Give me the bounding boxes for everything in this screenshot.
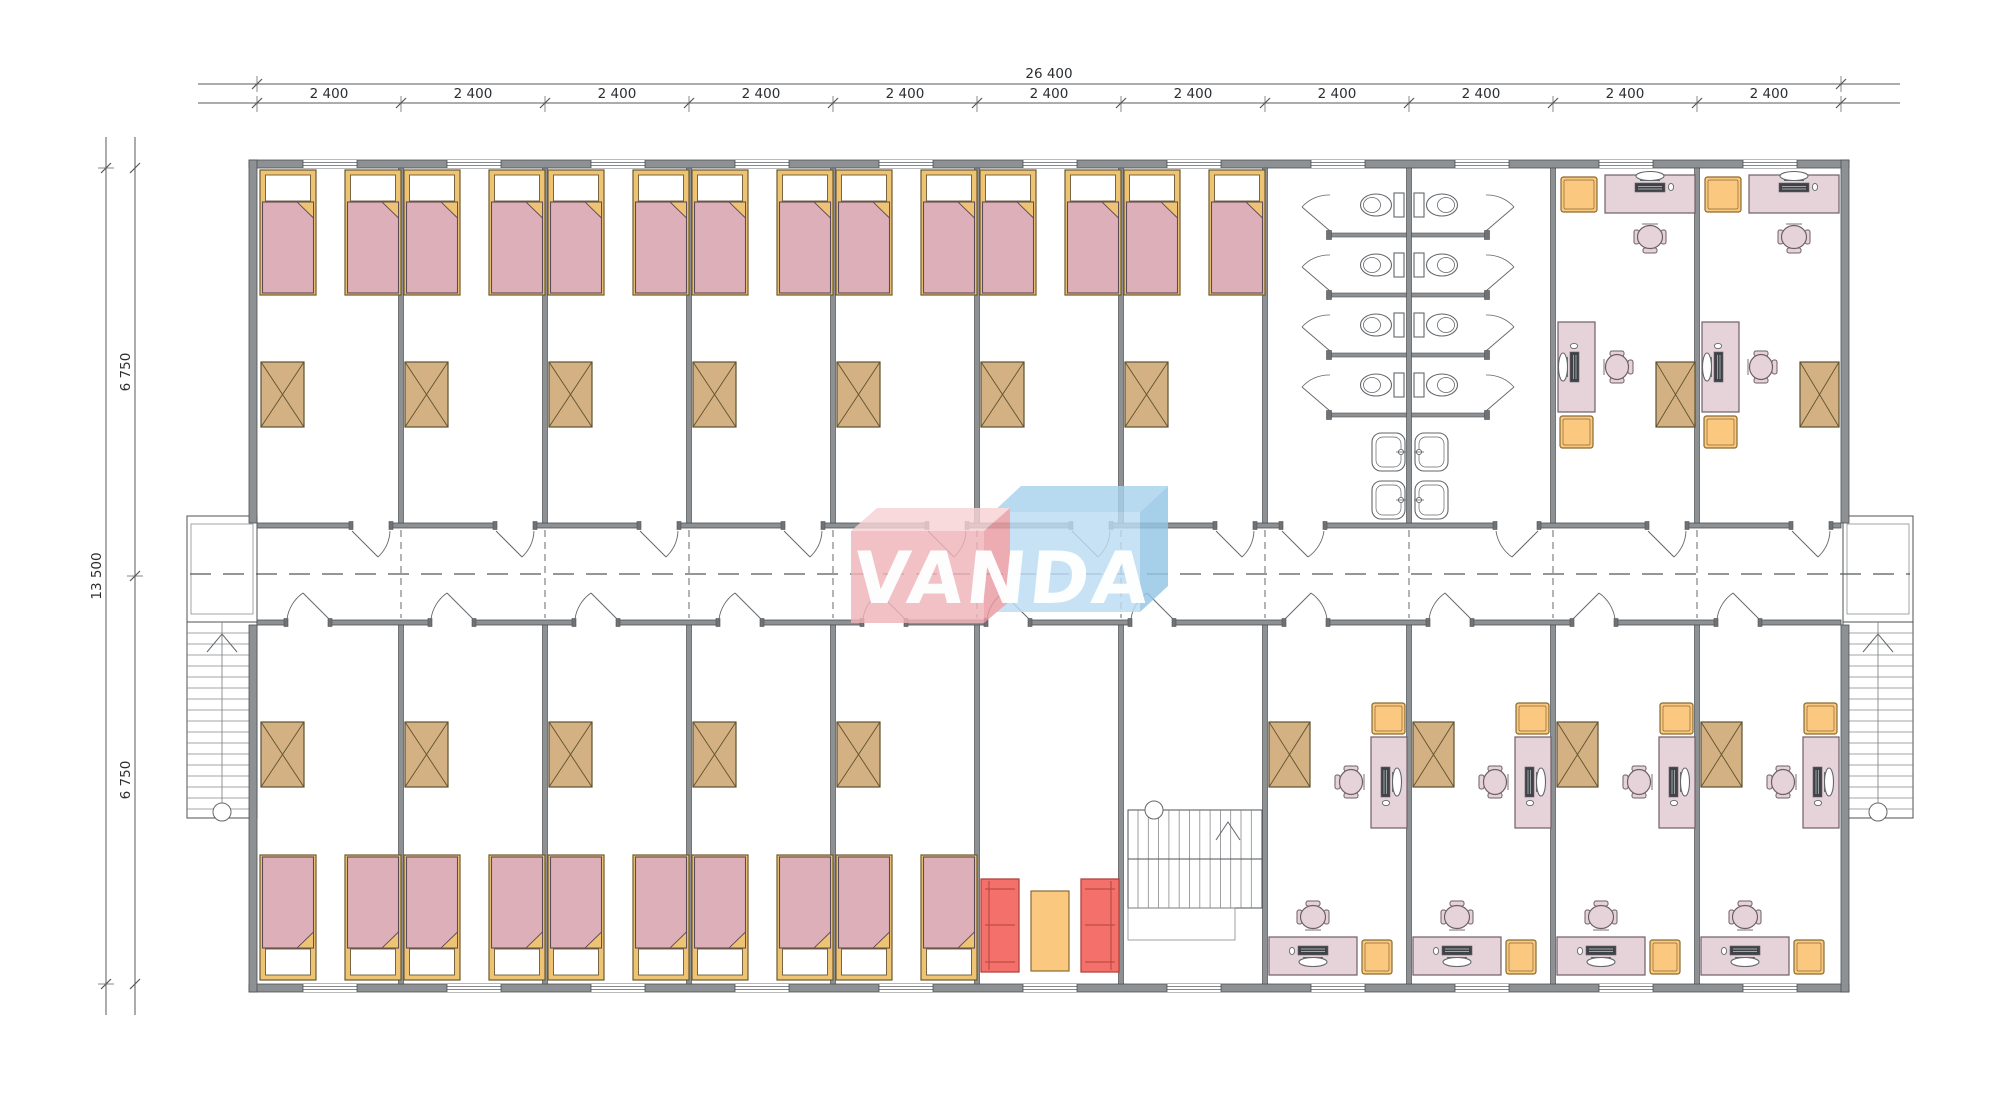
bed-icon [692, 170, 748, 295]
stall-door-icon [1486, 375, 1514, 411]
window-icon [591, 984, 645, 992]
room-bedroom-bottom-2 [404, 722, 545, 980]
desk-icon [1701, 937, 1789, 975]
wardrobe-icon [837, 362, 880, 427]
room-bedroom-top-2 [404, 170, 545, 427]
cabinet-icon [1660, 703, 1693, 734]
bed-icon [692, 855, 748, 980]
dimension-label: 13 500 [89, 552, 105, 599]
desk-icon [1269, 937, 1357, 975]
wardrobe-icon [405, 362, 448, 427]
desk-icon [1413, 937, 1501, 975]
dimension-label: 6 750 [118, 353, 134, 392]
window-icon [1023, 984, 1077, 992]
door-icon [1717, 593, 1759, 619]
bed-icon [921, 855, 977, 980]
dimension-label: 2 400 [1318, 86, 1357, 102]
sofa-icon [1081, 879, 1119, 972]
office-chair-icon [1297, 901, 1329, 930]
window-icon [1311, 984, 1365, 992]
window-icon [1743, 984, 1797, 992]
dimension-label: 2 400 [598, 86, 637, 102]
room-bedroom-bottom-3 [548, 722, 689, 980]
wardrobe-icon [981, 362, 1024, 427]
floor-plan: 26 4002 4002 4002 4002 4002 4002 4002 40… [0, 0, 2000, 1099]
cabinet-icon [1372, 703, 1405, 734]
bed-icon [1065, 170, 1121, 295]
dimension-label: 2 400 [1606, 86, 1645, 102]
room-bedroom-top-4 [692, 170, 833, 427]
dimension-label: 2 400 [1174, 86, 1213, 102]
window-icon [447, 984, 501, 992]
bed-icon [404, 170, 460, 295]
room-bedroom-top-7 [1124, 170, 1265, 427]
door-icon [431, 593, 473, 619]
office-chair-icon [1748, 351, 1777, 383]
room-office-top-10 [1558, 172, 1695, 449]
office-chair-icon [1767, 766, 1796, 798]
bed-icon [777, 170, 833, 295]
bed-icon [548, 855, 604, 980]
sink-icon [1414, 481, 1448, 519]
dimension-label: 2 400 [310, 86, 349, 102]
wardrobe-icon [1413, 722, 1454, 787]
bed-icon [345, 855, 401, 980]
cabinet-icon [1560, 416, 1593, 448]
bed-icon [980, 170, 1036, 295]
wardrobe-icon [261, 362, 304, 427]
toilet-icon [1414, 193, 1458, 217]
room-bedroom-top-6 [980, 170, 1121, 427]
dimension-label: 2 400 [1462, 86, 1501, 102]
room-office-bottom-9 [1413, 703, 1551, 975]
window-icon [303, 160, 357, 168]
wardrobe-icon [1701, 722, 1742, 787]
wardrobe-icon [693, 362, 736, 427]
room-lounge [981, 879, 1119, 972]
room-bedroom-top-1 [260, 170, 401, 427]
dimension-label: 2 400 [454, 86, 493, 102]
desk-icon [1557, 937, 1645, 975]
wardrobe-icon [549, 362, 592, 427]
room-office-bottom-10 [1557, 703, 1695, 975]
stall-door-icon [1486, 195, 1514, 231]
room-bedroom-bottom-4 [692, 722, 833, 980]
cabinet-icon [1362, 940, 1392, 974]
bed-icon [260, 855, 316, 980]
wardrobe-icon [261, 722, 304, 787]
bed-icon [489, 170, 545, 295]
wardrobe-icon [1800, 362, 1839, 427]
sofa-icon [981, 879, 1019, 972]
toilet-icon [1414, 373, 1458, 397]
office-chair-icon [1479, 766, 1508, 798]
cabinet-icon [1650, 940, 1680, 974]
stall-door-icon [1486, 315, 1514, 351]
sink-icon [1372, 433, 1406, 471]
dimension-label: 2 400 [1030, 86, 1069, 102]
sink-icon [1414, 433, 1448, 471]
stall-door-icon [1302, 315, 1330, 351]
door-icon [784, 531, 822, 557]
cabinet-icon [1506, 940, 1536, 974]
door-icon [1429, 593, 1471, 619]
window-icon [735, 160, 789, 168]
door-icon [1216, 531, 1254, 557]
external-stairs-left [187, 516, 257, 821]
cabinet-icon [1516, 703, 1549, 734]
window-icon [879, 160, 933, 168]
bed-icon [921, 170, 977, 295]
external-stairs-right [1843, 516, 1913, 821]
door-icon [640, 531, 678, 557]
bed-icon [345, 170, 401, 295]
room-bedroom-bottom-5 [836, 722, 977, 980]
door-icon [1285, 593, 1327, 619]
bed-icon [404, 855, 460, 980]
room-bedroom-top-5 [836, 170, 977, 427]
dimension-label: 2 400 [1750, 86, 1789, 102]
room-office-top-11 [1702, 172, 1839, 449]
office-chair-icon [1623, 766, 1652, 798]
bed-icon [260, 170, 316, 295]
coffee-table-icon [1031, 891, 1069, 971]
office-chair-icon [1634, 224, 1666, 253]
wardrobe-icon [1125, 362, 1168, 427]
dimension-label: 2 400 [742, 86, 781, 102]
door-icon [1496, 531, 1538, 557]
office-chair-icon [1778, 224, 1810, 253]
wardrobe-icon [837, 722, 880, 787]
wardrobe-icon [1656, 362, 1695, 427]
stall-door-icon [1486, 255, 1514, 291]
door-icon [1792, 531, 1830, 557]
window-icon [1599, 160, 1653, 168]
window-icon [1455, 984, 1509, 992]
toilet-icon [1361, 313, 1405, 337]
office-chair-icon [1729, 901, 1761, 930]
room-stairwell [1128, 801, 1262, 940]
wardrobe-icon [405, 722, 448, 787]
toilet-icon [1361, 373, 1405, 397]
bed-icon [836, 855, 892, 980]
window-icon [1311, 160, 1365, 168]
dimension-label: 26 400 [1025, 66, 1072, 82]
door-icon [719, 593, 761, 619]
window-icon [1455, 160, 1509, 168]
room-office-bottom-8 [1269, 703, 1407, 975]
wardrobe-icon [1269, 722, 1310, 787]
stall-door-icon [1302, 255, 1330, 291]
stall-door-icon [1302, 195, 1330, 231]
cabinet-icon [1804, 703, 1837, 734]
room-office-bottom-11 [1701, 703, 1839, 975]
office-chair-icon [1585, 901, 1617, 930]
door-icon [1573, 593, 1615, 619]
cabinet-icon [1705, 177, 1741, 212]
dimension-label: 2 400 [886, 86, 925, 102]
bed-icon [548, 170, 604, 295]
toilet-icon [1361, 253, 1405, 277]
door-icon [352, 531, 390, 557]
window-icon [303, 984, 357, 992]
wardrobe-icon [1557, 722, 1598, 787]
office-chair-icon [1441, 901, 1473, 930]
window-icon [1743, 160, 1797, 168]
door-icon [1282, 531, 1324, 557]
floor-plan-canvas: 26 4002 4002 4002 4002 4002 4002 4002 40… [0, 0, 2000, 1099]
room-bedroom-top-3 [548, 170, 689, 427]
window-icon [1023, 160, 1077, 168]
bed-icon [489, 855, 545, 980]
door-icon [1648, 531, 1686, 557]
office-chair-icon [1335, 766, 1364, 798]
toilet-icon [1361, 193, 1405, 217]
bed-icon [1209, 170, 1265, 295]
bed-icon [633, 855, 689, 980]
window-icon [735, 984, 789, 992]
bed-icon [836, 170, 892, 295]
bed-icon [777, 855, 833, 980]
vanda-logo-text: VANDA [849, 537, 1155, 621]
toilet-icon [1414, 253, 1458, 277]
sink-icon [1372, 481, 1406, 519]
stall-door-icon [1302, 375, 1330, 411]
cabinet-icon [1561, 177, 1597, 212]
window-icon [1599, 984, 1653, 992]
bed-icon [1124, 170, 1180, 295]
wardrobe-icon [693, 722, 736, 787]
window-icon [1167, 160, 1221, 168]
window-icon [879, 984, 933, 992]
toilet-icon [1414, 313, 1458, 337]
window-icon [591, 160, 645, 168]
dimension-label: 6 750 [118, 761, 134, 800]
room-bedroom-bottom-1 [260, 722, 401, 980]
window-icon [447, 160, 501, 168]
cabinet-icon [1794, 940, 1824, 974]
door-icon [496, 531, 534, 557]
window-icon [1167, 984, 1221, 992]
door-icon [575, 593, 617, 619]
office-chair-icon [1604, 351, 1633, 383]
wardrobe-icon [549, 722, 592, 787]
door-icon [287, 593, 329, 619]
bed-icon [633, 170, 689, 295]
cabinet-icon [1704, 416, 1737, 448]
